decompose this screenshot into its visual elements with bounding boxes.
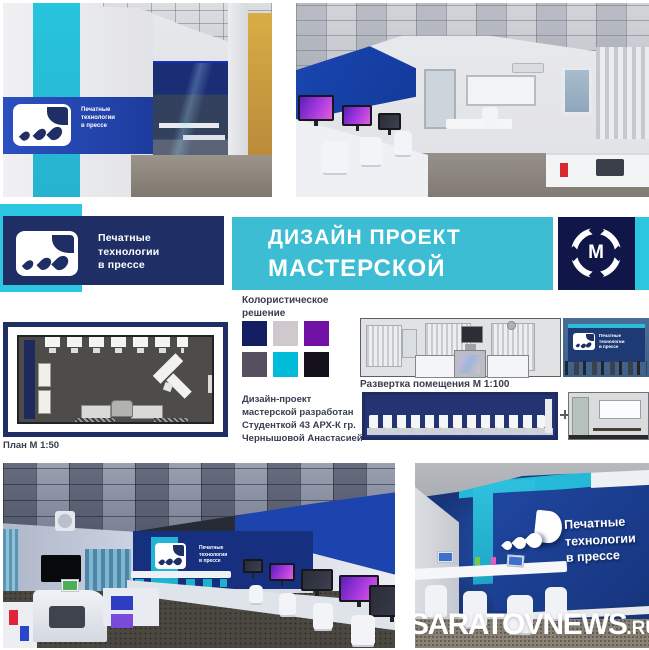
elevation-seating-wall <box>362 392 558 440</box>
color-swatches <box>242 321 329 377</box>
monitor <box>298 95 334 121</box>
whiteboard <box>599 400 641 419</box>
m-emblem: М <box>558 217 635 290</box>
laptop <box>507 554 525 567</box>
brand-wall-band: Печатные технологии в прессе <box>3 97 153 154</box>
swatch <box>273 352 298 377</box>
floor-plan <box>3 322 228 437</box>
watermark-suffix: .RU <box>626 618 649 639</box>
slat-panel <box>596 47 649 139</box>
plan-door <box>208 375 212 393</box>
elevation-brand-wall: Печатные технологии в прессе <box>563 318 649 377</box>
reception-desk <box>33 590 107 642</box>
laptop <box>437 551 454 563</box>
render-hallway-view: Печатные технологии в прессе <box>3 3 272 197</box>
chair <box>313 603 333 629</box>
title-line1: ДИЗАЙН ПРОЕКТ <box>268 226 461 250</box>
plan-desk-row <box>45 337 188 347</box>
watermark: SARATOVNEWS.RU <box>415 608 649 642</box>
plan-hatch <box>75 418 115 422</box>
plan-cabinet <box>38 363 51 387</box>
emblem-letter: М <box>577 234 615 272</box>
monitor <box>301 569 333 591</box>
pencil-cup <box>491 557 496 565</box>
teacher-desk <box>446 119 512 129</box>
chair <box>482 107 498 127</box>
red-folder <box>9 610 18 625</box>
swatch <box>242 352 267 377</box>
brand-logo-icon <box>13 104 71 146</box>
title-line2: МАСТЕРСКОЙ <box>268 255 445 283</box>
pencil-cup <box>475 557 480 565</box>
chair <box>279 593 296 615</box>
drop-icon <box>46 125 64 143</box>
yellow-wall <box>248 13 272 163</box>
red-folder <box>560 163 568 177</box>
elevation-bottom <box>362 392 649 440</box>
brand-logo-text: Печатные технологии в прессе <box>599 333 624 350</box>
brand-logo-icon <box>573 333 595 350</box>
swatch <box>273 321 298 346</box>
elevation-scale-label: Развертка помещения М 1:100 <box>360 379 509 390</box>
leaf-icon <box>173 545 184 556</box>
monitor <box>378 113 401 130</box>
blue-folder <box>20 626 29 641</box>
vent-icon <box>55 511 75 531</box>
drop-icon <box>22 258 36 272</box>
carpet-floor <box>131 155 272 197</box>
plan-brand-wall <box>24 340 35 419</box>
poster-canvas: Печатные технологии в прессе <box>0 0 649 650</box>
render-classroom-view <box>296 3 649 197</box>
brand-logo-text: Печатные технологии в прессе <box>81 106 115 130</box>
window <box>402 329 417 358</box>
floor-plan-drawing <box>17 335 214 424</box>
drop-icon <box>172 556 182 566</box>
leaf-icon <box>586 334 594 341</box>
press-machine <box>454 350 486 378</box>
chair-legs <box>369 427 545 434</box>
monitor <box>243 559 263 573</box>
cabinet <box>546 153 649 187</box>
leaf-icon <box>52 235 74 254</box>
chair <box>322 141 348 173</box>
drop-icon <box>158 559 165 566</box>
swatch <box>304 321 329 346</box>
brand-logo-icon <box>16 231 78 276</box>
plan-cabinet <box>38 390 51 414</box>
plan-table <box>131 405 163 419</box>
vent-icon <box>507 321 516 330</box>
chair <box>394 131 412 155</box>
door <box>545 399 552 433</box>
chair <box>360 137 382 165</box>
monitor <box>342 105 372 126</box>
drop-icon <box>585 341 592 348</box>
chair <box>351 615 375 645</box>
shutter-ring-icon: М <box>571 228 621 278</box>
cabinet <box>487 355 529 378</box>
brand-logo-icon <box>155 543 186 569</box>
designer-credit: Дизайн-проект мастерской разработан Студ… <box>242 393 363 445</box>
laptop <box>61 579 79 592</box>
meeting-table <box>131 571 231 578</box>
brand-3d-text: Печатные технологии в прессе <box>564 513 637 566</box>
elevation-board-wall <box>568 392 649 440</box>
brand-logo-text: Печатные технологии в прессе <box>199 545 227 565</box>
project-title-banner: ДИЗАЙН ПРОЕКТ МАСТЕРСКОЙ <box>232 217 553 290</box>
plan-chair-row <box>49 348 184 353</box>
cyan-edge-stripe <box>635 217 649 290</box>
elevation-top: Печатные технологии в прессе <box>360 318 649 377</box>
leaf-icon <box>47 107 68 125</box>
glass-door <box>572 397 589 437</box>
table-silhouette <box>593 428 641 431</box>
blinds <box>366 325 402 367</box>
storage-box <box>596 159 624 176</box>
cabinet <box>415 355 455 378</box>
chair <box>249 585 263 603</box>
brand-banner-small: Печатные технологии в прессе <box>568 324 645 362</box>
render-workshop-view: Печатные технологии в прессе <box>3 463 395 648</box>
plan-table <box>81 405 111 419</box>
whiteboard <box>466 75 536 106</box>
plan-scale-label: План М 1:50 <box>3 440 59 451</box>
swatch <box>242 321 267 346</box>
swatch <box>304 352 329 377</box>
drop-icon <box>19 129 32 142</box>
drop-icon <box>51 253 71 273</box>
tables-silhouette <box>565 361 647 375</box>
tv-screen <box>461 326 483 343</box>
elevation-window-wall <box>360 318 561 377</box>
brand-logo-text: Печатные технологии в прессе <box>98 232 159 273</box>
monitor <box>369 585 395 617</box>
brand-banner: Печатные технологии в прессе <box>3 216 224 285</box>
plan-hatch <box>154 418 188 422</box>
window <box>562 67 592 115</box>
tv-screen <box>41 555 81 582</box>
watermark-main: SARATOVNEWS <box>415 608 626 641</box>
ac-unit <box>512 63 544 73</box>
plan-press-machine <box>111 400 133 417</box>
render-brand-wall-view: Печатные технологии в прессе SARATOVNEWS… <box>415 463 649 648</box>
shelf-unit <box>103 588 159 626</box>
palette-heading: Колористическое решение <box>242 294 329 320</box>
floor-band <box>569 435 648 439</box>
monitor <box>269 563 295 581</box>
plan-chair <box>163 382 173 392</box>
shelf <box>3 602 37 648</box>
